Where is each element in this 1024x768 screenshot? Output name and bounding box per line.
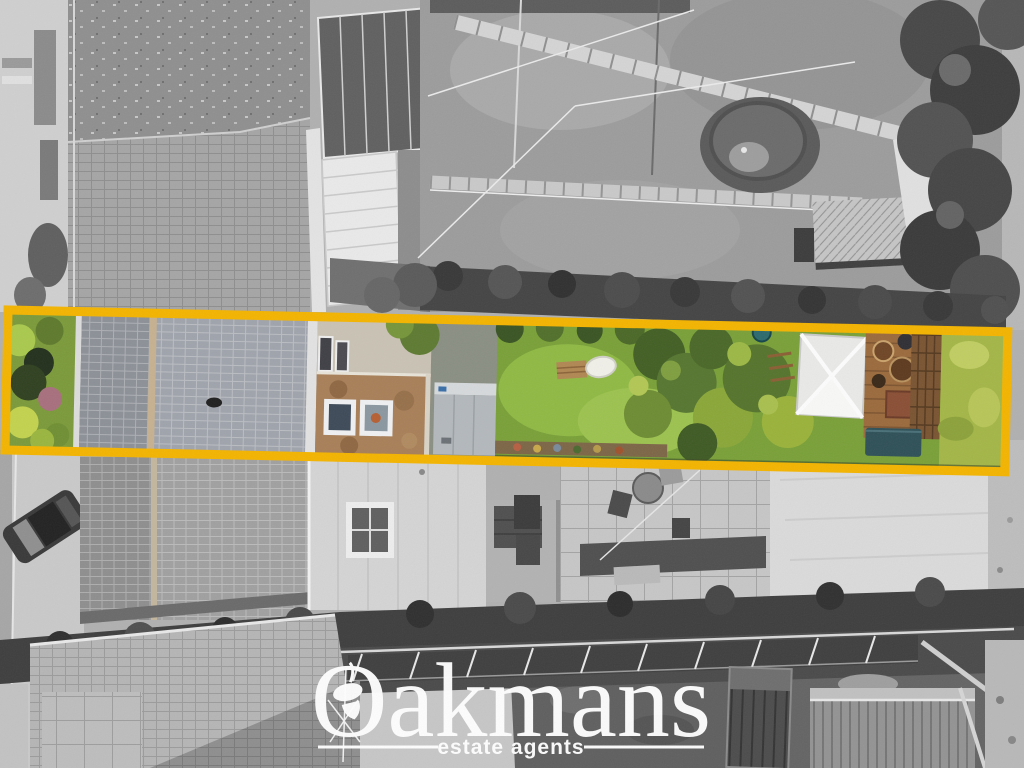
aerial-photo: Oakmans estate agents [0,0,1024,768]
aerial-photo-canvas: Oakmans estate agents [0,0,1024,768]
photo-grain-overlay [0,0,1024,768]
